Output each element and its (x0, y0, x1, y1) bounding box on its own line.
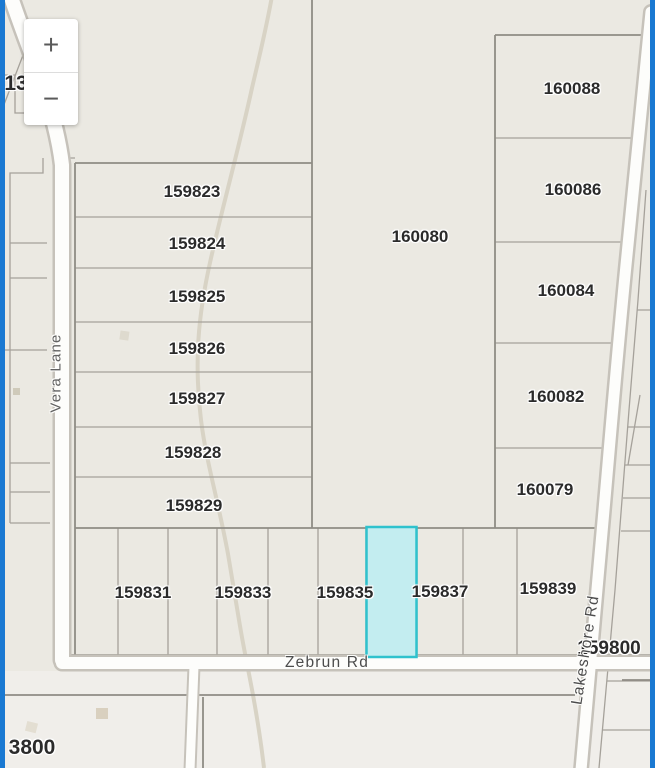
parcel-label-160082: 160082 (528, 387, 585, 407)
zoom-out-button[interactable]: − (24, 73, 78, 126)
building-footprint (96, 708, 108, 719)
parcel-label-159828: 159828 (165, 443, 222, 463)
map-edge-line-left (0, 0, 5, 768)
parcel-label-159826: 159826 (169, 339, 226, 359)
map-edge-line-right (650, 0, 655, 768)
parcel-label-159839: 159839 (520, 579, 577, 599)
zoom-control: + − (24, 19, 78, 125)
parcel-label-160086: 160086 (545, 180, 602, 200)
parcel-label-159835: 159835 (317, 583, 374, 603)
zoom-in-button[interactable]: + (24, 19, 78, 73)
parcel-label-159823: 159823 (164, 182, 221, 202)
parcel-label-160079: 160079 (517, 480, 574, 500)
map-graphics (0, 0, 655, 768)
parcel-label-159829: 159829 (166, 496, 223, 516)
parcel-label-159831: 159831 (115, 583, 172, 603)
selected-parcel[interactable] (367, 527, 417, 657)
road-label-vera-lane: Vera Lane (48, 333, 65, 412)
parcel-label-160080: 160080 (392, 227, 449, 247)
minus-icon: − (43, 83, 59, 115)
parcel-label-159833: 159833 (215, 583, 272, 603)
parcel-label-159824: 159824 (169, 234, 226, 254)
parcel-label-159837: 159837 (412, 582, 469, 602)
parcel-label-160084: 160084 (538, 281, 595, 301)
road-label-zebrun-rd: Zebrun Rd (285, 654, 369, 672)
plus-icon: + (43, 29, 59, 61)
parcel-label-159827: 159827 (169, 389, 226, 409)
parcel-label-3800-partial: 3800 (9, 736, 56, 760)
parcel-map-canvas[interactable]: 159823 159824 159825 159826 159827 15982… (0, 0, 655, 768)
south-area (0, 671, 655, 768)
building-footprint (119, 330, 129, 340)
building-footprint (13, 388, 20, 395)
parcel-label-159825: 159825 (169, 287, 226, 307)
map-background (0, 0, 655, 768)
parcel-label-160088: 160088 (544, 79, 601, 99)
